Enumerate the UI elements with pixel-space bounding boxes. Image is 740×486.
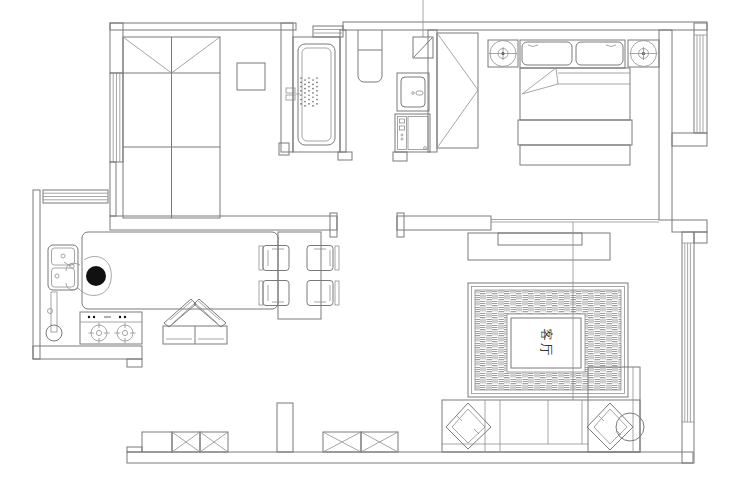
wall-top-left xyxy=(110,23,296,30)
dining-chair xyxy=(259,281,289,306)
nightstand-left xyxy=(488,40,518,67)
sofa-pillow xyxy=(446,403,491,449)
dining-chair xyxy=(307,246,339,271)
blanket-fold xyxy=(522,68,558,94)
tv-cabinet xyxy=(468,233,610,260)
sideboard xyxy=(163,299,227,344)
cabinet-x xyxy=(172,432,200,452)
wall-bed1-left-lower xyxy=(110,162,116,216)
burner-icon xyxy=(115,323,136,344)
faucet-icon xyxy=(70,264,74,268)
wall-right-upper xyxy=(672,220,707,232)
lamp-icon xyxy=(489,41,517,67)
window-top-bath xyxy=(313,26,343,37)
sofa-pillow xyxy=(587,403,633,450)
living-room: 客厅 xyxy=(442,222,644,452)
wall-bottom-step xyxy=(127,447,142,452)
bed-single xyxy=(123,37,220,218)
window-kitchen-top xyxy=(43,190,108,203)
nightstand xyxy=(237,63,265,90)
blanket-band xyxy=(518,120,632,145)
wall-kitchen-bottom xyxy=(33,346,142,359)
door-jamb-right xyxy=(397,213,404,237)
floor-plan-canvas: 客厅 xyxy=(0,0,740,486)
wall-bottom xyxy=(127,452,693,463)
column xyxy=(277,403,293,452)
person-head xyxy=(86,266,106,286)
wall-step-right xyxy=(694,232,707,243)
wall-bath-middle xyxy=(340,30,346,152)
door-stub-bath-right xyxy=(393,152,407,161)
living-room-label: 客厅 xyxy=(539,329,554,358)
cabinet-x xyxy=(200,432,228,452)
kitchen-counter xyxy=(82,232,278,309)
door-stub-bath-left xyxy=(338,152,352,160)
wall-master-step xyxy=(672,133,707,146)
cabinet-x xyxy=(361,432,398,452)
wardrobe xyxy=(437,33,478,148)
pot xyxy=(46,325,62,341)
wall-top-right xyxy=(343,22,707,30)
dining-chair xyxy=(259,246,289,271)
floor-plan-svg: 客厅 xyxy=(0,0,740,486)
burner-icon xyxy=(89,323,110,344)
window-master-right xyxy=(694,23,707,133)
cabinet-x xyxy=(323,432,361,452)
kitchen xyxy=(46,232,278,344)
sliding-door-track xyxy=(491,220,659,223)
window-bed1-left xyxy=(110,73,123,162)
outlet-icon xyxy=(48,309,53,314)
wash-basin xyxy=(358,30,382,82)
wall-divider-right xyxy=(397,216,491,230)
wall-master-inner xyxy=(659,30,672,220)
window-living-right xyxy=(682,232,694,463)
washing-machine xyxy=(395,114,430,152)
master-bedroom xyxy=(437,33,659,165)
kitchen-sink xyxy=(48,245,78,290)
bedroom1 xyxy=(123,37,265,218)
vanity-sink xyxy=(397,73,429,111)
dining-chair xyxy=(307,281,339,306)
nightstand-right xyxy=(628,40,659,67)
person-figure xyxy=(66,256,111,295)
balcony-cabinets xyxy=(142,403,398,452)
bathtub xyxy=(293,37,340,152)
dining-area xyxy=(259,232,339,319)
lamp-icon xyxy=(630,41,658,67)
bed-foot xyxy=(520,145,630,165)
wall-kitchen-notch xyxy=(127,359,142,367)
bathroom xyxy=(286,30,433,152)
wall-kitchen-left xyxy=(33,190,40,359)
shower-spray-dots xyxy=(301,78,317,106)
gas-stove xyxy=(80,312,142,344)
rug: 客厅 xyxy=(468,283,628,397)
cabinet xyxy=(142,432,172,452)
sofa xyxy=(442,400,640,452)
bed-double xyxy=(518,40,632,165)
door-jamb-left xyxy=(330,213,337,237)
wall-bed1-bath xyxy=(281,23,293,152)
duct-shaft xyxy=(413,37,433,58)
